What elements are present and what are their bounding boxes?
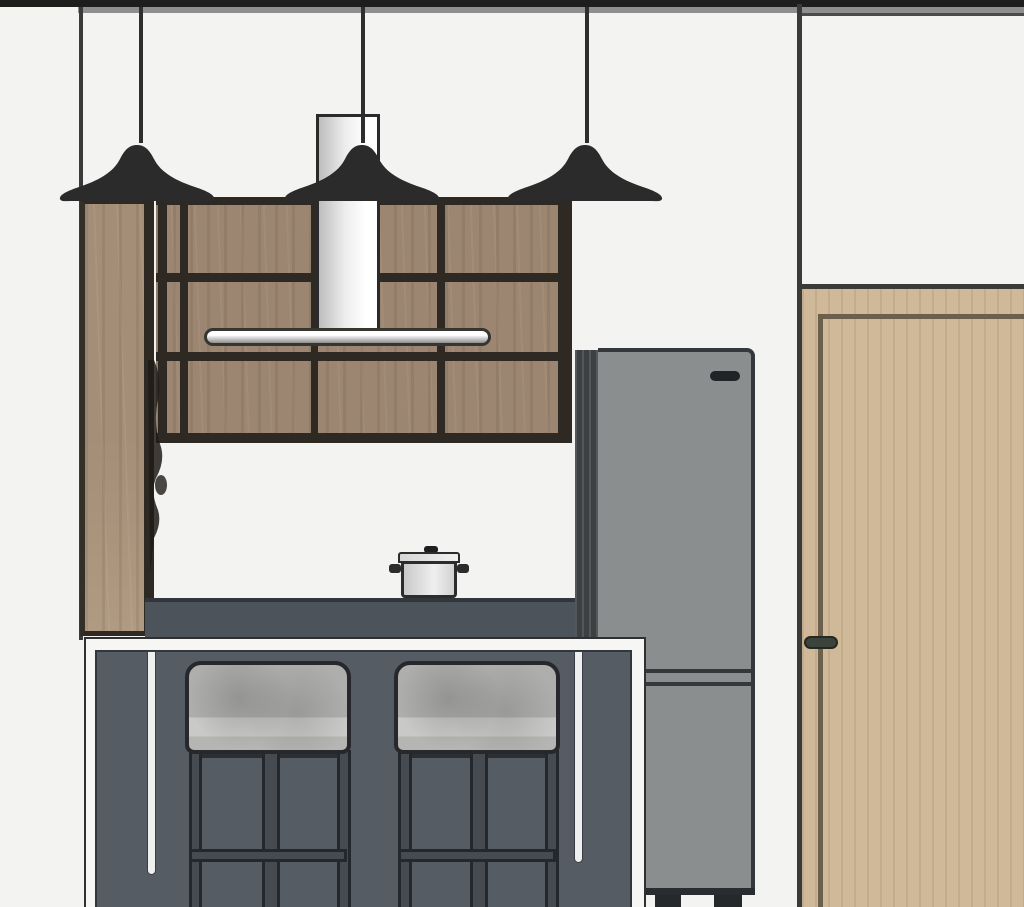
cooking-pot: [401, 561, 457, 598]
pot-handle-left: [389, 564, 401, 573]
stool-1-cushion: [185, 661, 351, 754]
stool-1-stretcher: [189, 849, 347, 862]
fridge-foot-right: [714, 895, 742, 907]
stool-2-cushion: [394, 661, 560, 754]
kitchen-elevation-render: [0, 0, 1024, 907]
island-pinstripe-right: [574, 651, 583, 863]
door-panel-line-vertical: [818, 314, 823, 907]
fridge-handle: [710, 371, 740, 381]
door-head-frame-line: [800, 284, 1024, 289]
stool-1-leg-right: [337, 750, 351, 907]
tall-wood-side-panel: [80, 200, 154, 636]
pot-handle-right: [457, 564, 469, 573]
door-wood-grain: [802, 289, 1024, 907]
cabinet-rail-lower: [156, 352, 572, 361]
range-hood-canopy: [204, 328, 491, 346]
ceiling-band-dark: [0, 0, 1024, 7]
pendant-1-rod: [139, 7, 143, 143]
cabinet-bottom-rail: [156, 433, 572, 443]
cabinet-stile-2: [180, 197, 188, 443]
ceiling-soffit-line-right: [797, 13, 1024, 16]
kitchen-island: [84, 637, 646, 907]
pendant-2-rod: [361, 7, 365, 143]
stool-1-leg-left: [189, 750, 202, 907]
pendant-1-shade: [57, 141, 217, 203]
fridge-foot-left: [655, 895, 681, 907]
wall-corner-line-right: [797, 4, 802, 907]
island-pinstripe-left: [147, 651, 156, 875]
countertop: [145, 598, 602, 638]
pendant-3-rod: [585, 7, 589, 143]
interior-door: [802, 289, 1024, 907]
door-handle: [804, 636, 838, 649]
stool-2-stretcher: [398, 849, 556, 862]
pendant-2-shade: [282, 141, 442, 203]
pendant-3-shade: [505, 141, 665, 203]
cabinet-stile-4: [437, 197, 445, 443]
stool-1-leg-center: [262, 750, 280, 907]
cabinet-right-edge: [558, 197, 572, 443]
panel-edge-shadow: [148, 360, 178, 575]
door-panel-line-horizontal: [818, 314, 1024, 319]
stool-2-leg-left: [398, 750, 412, 907]
stool-2-leg-center: [470, 750, 488, 907]
panel-wood-grain: [85, 204, 144, 631]
stool-2-leg-right: [545, 750, 559, 907]
